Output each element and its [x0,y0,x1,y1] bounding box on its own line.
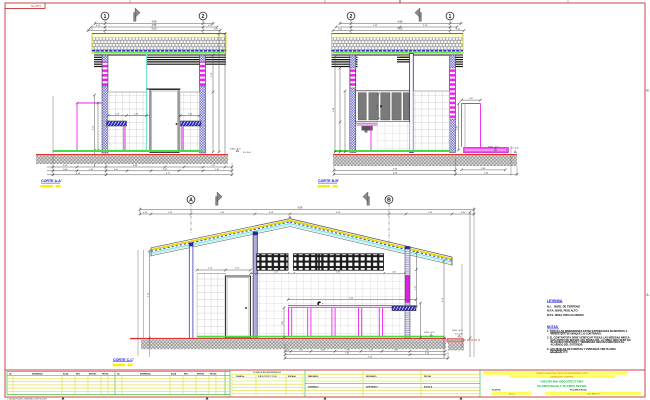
svg-text:0.90: 0.90 [282,321,284,325]
svg-text:4.88: 4.88 [398,21,403,24]
svg-text:LEYENDA: LEYENDA [547,299,563,303]
svg-text:9.96: 9.96 [298,207,303,210]
svg-text:No.: No. [9,373,13,375]
svg-text:1.90: 1.90 [163,169,167,171]
svg-text:0.70: 0.70 [114,169,118,171]
svg-text:N.P.A. NIVEL PISO ALTO: N.P.A. NIVEL PISO ALTO [547,309,578,313]
svg-text:ELAB.: ELAB. [171,372,177,375]
svg-text:No 2674: No 2674 [31,4,41,8]
svg-text:PLANOS EN REFERENCIA: PLANOS EN REFERENCIA [253,371,281,374]
svg-text:N.P.A. +0.15: N.P.A. +0.15 [488,146,499,149]
svg-text:N.P.A. +0.15: N.P.A. +0.15 [452,329,463,332]
svg-text:5.00: 5.00 [398,28,403,31]
svg-text:CORTE A-A': CORTE A-A' [41,179,62,183]
svg-text:REV.: REV. [184,373,189,375]
svg-text:ACABADO DEL EXTERIOR.: ACABADO DEL EXTERIOR. [551,343,584,346]
svg-text:APROB.: APROB. [89,372,97,375]
svg-text:MENOS QUE SE INDIQUE LO CONTRA: MENOS QUE SE INDIQUE LO CONTRARIO. [551,332,602,335]
svg-text:DISEÑADO: DISEÑADO [308,386,319,389]
svg-text:APROBADO: APROBADO [366,386,378,389]
svg-text:CASETA DE CONTROL: CASETA DE CONTROL [550,376,574,379]
svg-text:N.P.J. NIVEL PISO ACABADO: N.P.J. NIVEL PISO ACABADO [547,313,584,317]
svg-text:1.075: 1.075 [321,349,326,351]
svg-text:APROB.: APROB. [197,372,205,375]
svg-text:1.10: 1.10 [415,286,417,290]
svg-text:2: 2 [202,14,205,20]
svg-text:N.L. 0.00: N.L. 0.00 [511,148,519,150]
svg-text:REV.: REV. [76,373,81,375]
svg-text:0.35: 0.35 [369,349,373,351]
svg-text:POL ARCH Rd No.: POL ARCH Rd No. [570,389,588,392]
svg-text:1.17: 1.17 [377,105,379,109]
svg-text:1.45: 1.45 [89,169,93,171]
svg-text:DISCIPLINA ARQUITECTURA: DISCIPLINA ARQUITECTURA [541,379,585,383]
svg-text:FECHA: FECHA [424,375,431,378]
svg-text:0.70: 0.70 [215,169,219,171]
svg-text:1.40: 1.40 [425,349,429,351]
svg-text:N.L. NIVEL DE TERRENO: N.L. NIVEL DE TERRENO [547,304,580,308]
svg-text:N.P.A. +0.15: N.P.A. +0.15 [230,148,241,151]
svg-text:DIBUJADO: DIBUJADO [308,375,319,378]
svg-text:1: 1 [449,14,452,20]
svg-text:0.87: 0.87 [469,98,473,100]
svg-text:N.P.A. +0.15: N.P.A. +0.15 [424,331,435,334]
svg-text:0.78: 0.78 [211,165,215,167]
svg-text:1: 1 [104,14,107,20]
svg-text:5.00: 5.00 [152,28,157,31]
svg-text:FECHA: FECHA [102,372,109,375]
svg-text:2: 2 [350,14,353,20]
svg-text:1.000: 1.000 [63,169,68,171]
svg-text:CUERPO ESPECIALIZADO DE SEGURI: CUERPO ESPECIALIZADO DE SEGURIDAD PORT. [536,372,589,375]
svg-text:CORTE C-C': CORTE C-C' [113,358,134,362]
svg-text:0.90: 0.90 [299,349,303,351]
svg-text:CORTE B-B': CORTE B-B' [318,179,339,183]
svg-text:ENMIENDA: ENMIENDA [140,372,151,375]
svg-text:A-101: A-101 [509,392,516,395]
svg-text:PLAN No.: PLAN No. [492,389,502,392]
svg-text:PLANTA BAJA Y PLANTA TECHO: PLANTA BAJA Y PLANTA TECHO [538,384,588,388]
svg-text:FECHA: FECHA [210,372,217,375]
svg-text:ESCALA: ESCALA [424,386,433,389]
svg-text:0.80: 0.80 [394,349,398,351]
svg-text:ENMIENDA: ENMIENDA [32,372,43,375]
svg-text:A: A [189,197,193,203]
svg-text:No.: No. [117,373,121,375]
svg-text:B: B [387,197,391,203]
svg-text:NOTAS: NOTAS [547,325,558,329]
svg-text:1.48: 1.48 [481,168,485,170]
svg-text:ELAB.: ELAB. [63,372,69,375]
svg-text:N.L. 0.00: N.L. 0.00 [243,152,251,154]
svg-text:0.90: 0.90 [346,349,350,351]
svg-text:CSP-ARQ-02: CSP-ARQ-02 [586,392,600,395]
svg-text:REVISADO: REVISADO [366,375,377,378]
svg-text:0.35: 0.35 [286,349,290,351]
